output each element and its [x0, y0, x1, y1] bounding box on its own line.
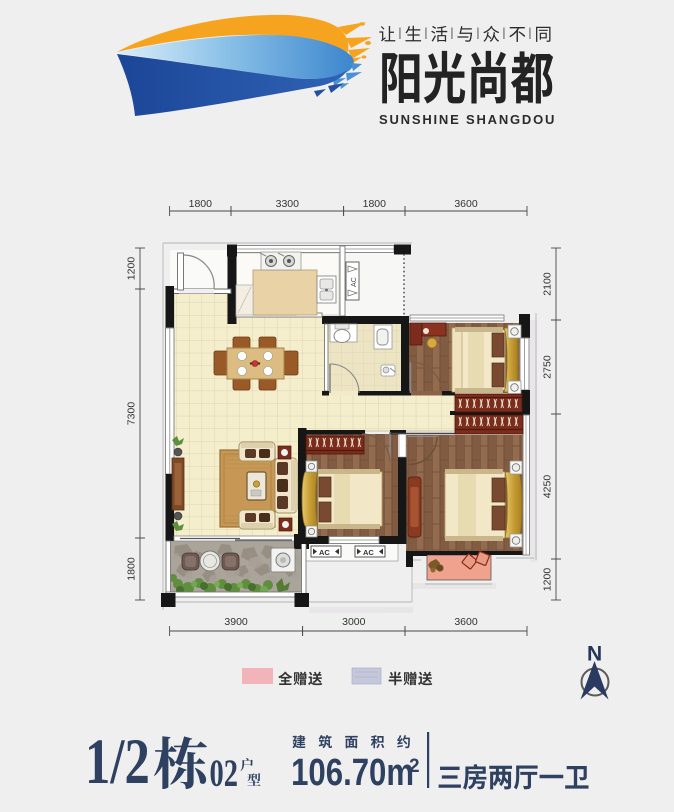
svg-text:1/2: 1/2 — [85, 725, 150, 797]
svg-text:1800: 1800 — [363, 198, 387, 210]
svg-text:AC: AC — [351, 277, 358, 287]
svg-text:3600: 3600 — [454, 198, 478, 210]
svg-text:2: 2 — [409, 756, 420, 777]
svg-text:3300: 3300 — [276, 198, 300, 210]
svg-text:AC: AC — [363, 548, 374, 557]
svg-text:3600: 3600 — [454, 616, 478, 628]
svg-text:1200: 1200 — [542, 568, 554, 592]
svg-text:SUNSHINE SHANGDOU: SUNSHINE SHANGDOU — [379, 112, 556, 127]
svg-text:02: 02 — [210, 753, 238, 795]
svg-text:1800: 1800 — [189, 198, 213, 210]
svg-text:1800: 1800 — [126, 557, 138, 581]
svg-text:AC: AC — [319, 548, 330, 557]
svg-text:4250: 4250 — [542, 475, 554, 499]
svg-text:2750: 2750 — [542, 355, 554, 379]
svg-text:3900: 3900 — [224, 616, 248, 628]
svg-text:2100: 2100 — [542, 272, 554, 296]
svg-text:106.70m: 106.70m — [291, 752, 414, 794]
svg-text:7300: 7300 — [126, 402, 138, 426]
svg-text:1200: 1200 — [126, 257, 138, 281]
svg-text:3000: 3000 — [342, 616, 366, 628]
